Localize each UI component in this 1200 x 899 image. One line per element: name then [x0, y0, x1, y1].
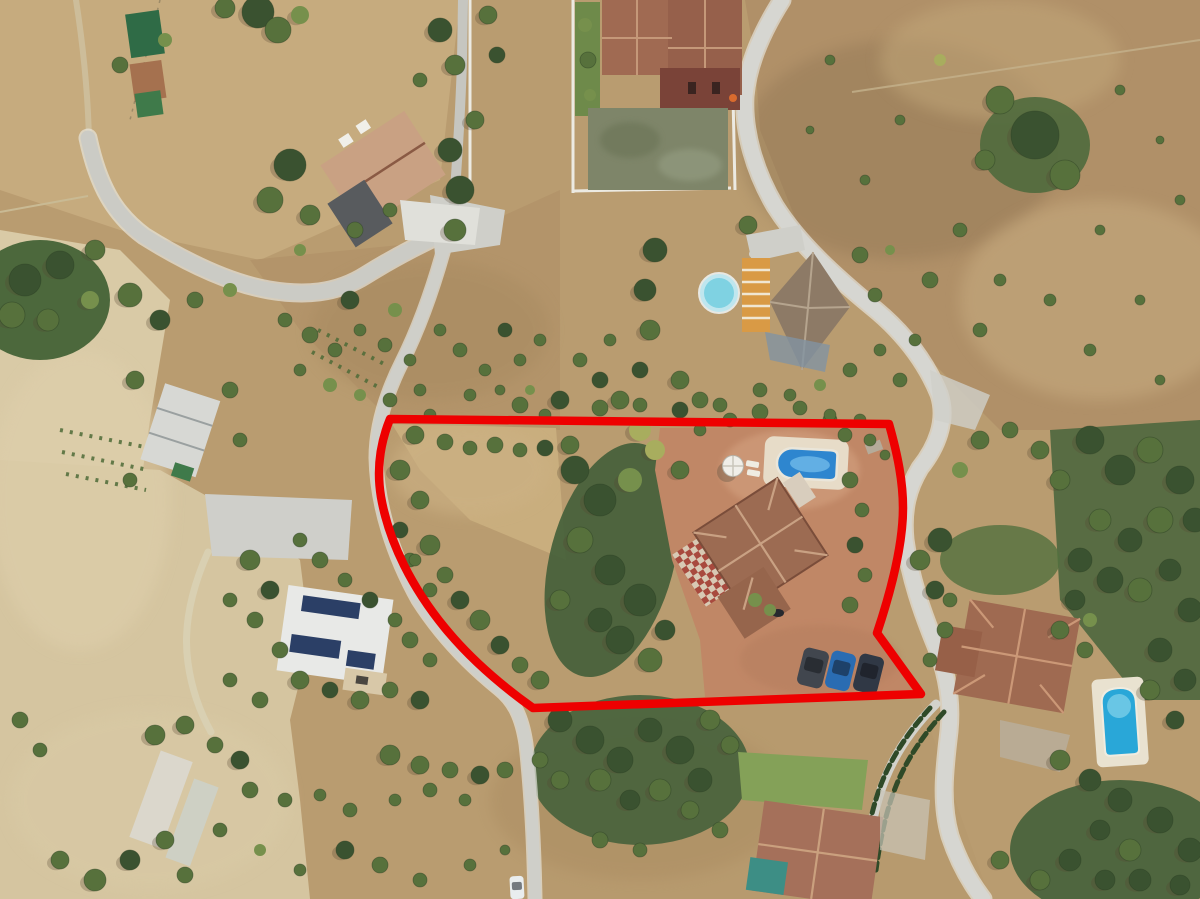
tree: [294, 864, 306, 876]
tree: [994, 274, 1006, 286]
tree: [721, 736, 739, 754]
tree: [463, 441, 477, 455]
tree: [380, 745, 400, 765]
tree: [910, 550, 930, 570]
tree: [428, 18, 452, 42]
tree: [512, 397, 528, 413]
tree: [343, 803, 357, 817]
tree: [274, 149, 306, 181]
garden-trees-southeast: [940, 525, 1060, 595]
tree: [1108, 788, 1132, 812]
tree: [952, 462, 968, 478]
tree: [1118, 528, 1142, 552]
tree: [512, 657, 528, 673]
tree: [672, 402, 688, 418]
tree: [272, 642, 288, 658]
tree: [423, 653, 437, 667]
tree: [748, 593, 762, 607]
tree: [254, 844, 266, 856]
tree: [855, 503, 869, 517]
tree: [584, 484, 616, 516]
tree: [1135, 295, 1145, 305]
tree: [223, 593, 237, 607]
tree: [291, 671, 309, 689]
tree: [550, 590, 570, 610]
tree: [388, 613, 402, 627]
tree: [252, 692, 268, 708]
tree: [1137, 437, 1163, 463]
tree: [150, 310, 170, 330]
tree: [383, 203, 397, 217]
tree: [561, 456, 589, 484]
tree: [1089, 509, 1111, 531]
tree: [633, 843, 647, 857]
tree: [934, 54, 946, 66]
villa-south-wall: [660, 68, 740, 110]
tree: [922, 272, 938, 288]
tree: [537, 440, 553, 456]
tree: [1148, 638, 1172, 662]
tree: [953, 223, 967, 237]
tree: [470, 610, 490, 630]
tree: [573, 353, 587, 367]
tree: [1031, 441, 1049, 459]
tree: [620, 790, 640, 810]
tree: [928, 528, 952, 552]
tree: [752, 404, 768, 420]
villa-window: [688, 82, 696, 94]
tree: [643, 238, 667, 262]
tree: [362, 592, 378, 608]
tree: [438, 138, 462, 162]
tree: [713, 398, 727, 412]
tree: [712, 822, 728, 838]
tree: [46, 251, 74, 279]
tree: [242, 782, 258, 798]
tree: [118, 283, 142, 307]
tree: [986, 86, 1014, 114]
tree: [638, 718, 662, 742]
tree: [1159, 559, 1181, 581]
tree: [561, 436, 579, 454]
tree: [389, 794, 401, 806]
tree: [618, 468, 642, 492]
tree: [607, 747, 633, 773]
aerial-photo-canvas: [0, 0, 1200, 899]
tree: [645, 440, 665, 460]
tree: [314, 789, 326, 801]
tree: [222, 382, 238, 398]
tree: [390, 460, 410, 480]
tree: [1002, 422, 1018, 438]
tree: [453, 343, 467, 357]
tree: [1129, 869, 1151, 891]
tree: [1076, 426, 1104, 454]
tree: [671, 461, 689, 479]
tree: [437, 434, 453, 450]
tree: [937, 622, 953, 638]
green-tarp: [134, 90, 163, 117]
tree: [885, 245, 895, 255]
tree: [588, 608, 612, 632]
tree: [868, 288, 882, 302]
tree: [328, 343, 342, 357]
tree: [247, 612, 263, 628]
tree: [351, 691, 369, 709]
tree: [372, 857, 388, 873]
tree: [825, 55, 835, 65]
tree: [764, 604, 776, 616]
tree: [406, 426, 424, 444]
tree: [231, 751, 249, 769]
tree: [1050, 750, 1070, 770]
tree: [655, 620, 675, 640]
tree: [551, 771, 569, 789]
tree: [312, 552, 328, 568]
tree: [814, 379, 826, 391]
tree: [514, 354, 526, 366]
tree: [880, 450, 890, 460]
tree: [84, 869, 106, 891]
tree: [842, 597, 858, 613]
tree: [187, 292, 203, 308]
tree: [446, 176, 474, 204]
tree: [909, 334, 921, 346]
tree: [753, 383, 767, 397]
tree: [215, 0, 235, 18]
tree: [943, 593, 957, 607]
tree: [592, 832, 608, 848]
tree: [411, 756, 429, 774]
tree: [126, 371, 144, 389]
tree: [513, 443, 527, 457]
tree: [261, 581, 279, 599]
tree: [1077, 642, 1093, 658]
tree: [595, 555, 625, 585]
tree: [784, 389, 796, 401]
tree: [112, 57, 128, 73]
tree: [858, 568, 872, 582]
tree: [383, 393, 397, 407]
tree: [843, 363, 857, 377]
tree: [1155, 375, 1165, 385]
tree: [382, 682, 398, 698]
tree: [1178, 598, 1200, 622]
tree: [120, 850, 140, 870]
tree: [123, 473, 137, 487]
tree: [265, 17, 291, 43]
tree: [33, 743, 47, 757]
tree: [1147, 807, 1173, 833]
tree: [466, 111, 484, 129]
teal-roof-annex: [746, 857, 788, 895]
tree: [1095, 870, 1115, 890]
tree: [1011, 111, 1059, 159]
tree: [991, 851, 1009, 869]
tree: [156, 831, 174, 849]
tree: [336, 841, 354, 859]
tree: [1083, 613, 1097, 627]
tree: [1095, 225, 1105, 235]
tree: [487, 437, 503, 453]
court-stain: [600, 122, 660, 158]
tree: [451, 591, 469, 609]
tree: [838, 428, 852, 442]
tree: [404, 354, 416, 366]
tree: [1090, 820, 1110, 840]
tree: [1156, 136, 1164, 144]
tree: [1059, 849, 1081, 871]
tree: [176, 716, 194, 734]
tree: [1079, 769, 1101, 791]
tree: [1178, 838, 1200, 862]
tree: [1050, 470, 1070, 490]
tree: [81, 291, 99, 309]
tree: [388, 303, 402, 317]
solar-house-window: [355, 675, 368, 685]
tree: [624, 584, 656, 616]
driveway-solar-house: [205, 494, 352, 560]
tree: [1166, 466, 1194, 494]
tree: [666, 736, 694, 764]
tree: [413, 73, 427, 87]
tree: [495, 385, 505, 395]
tree: [1170, 875, 1190, 895]
tree: [1068, 548, 1092, 572]
tree: [1097, 567, 1123, 593]
tree: [633, 398, 647, 412]
tree: [649, 779, 671, 801]
tree: [1115, 85, 1125, 95]
tree: [895, 115, 905, 125]
tree: [223, 673, 237, 687]
tree: [323, 378, 337, 392]
tree: [12, 712, 28, 728]
tree: [893, 373, 907, 387]
tree: [471, 766, 489, 784]
tree: [497, 762, 513, 778]
green-shed: [125, 10, 165, 58]
tree: [411, 491, 429, 509]
tree: [864, 434, 876, 446]
tree: [1105, 455, 1135, 485]
tree: [213, 823, 227, 837]
tree: [0, 302, 25, 328]
tree: [338, 573, 352, 587]
tree: [1050, 160, 1080, 190]
tree: [692, 392, 708, 408]
tree: [1166, 711, 1184, 729]
tree: [300, 205, 320, 225]
tree: [257, 187, 283, 213]
tree: [278, 313, 292, 327]
tree: [806, 126, 814, 134]
tree: [532, 752, 548, 768]
tree: [444, 219, 466, 241]
tree: [926, 581, 944, 599]
tree: [584, 89, 596, 101]
tree: [973, 323, 987, 337]
tree: [793, 401, 807, 415]
tree: [681, 801, 699, 819]
tree: [294, 364, 306, 376]
tree: [442, 762, 458, 778]
tree: [531, 671, 549, 689]
tree: [638, 648, 662, 672]
tree: [158, 33, 172, 47]
tree: [640, 320, 660, 340]
tree: [975, 150, 995, 170]
tree: [842, 472, 858, 488]
tree: [592, 372, 608, 388]
villa-window: [712, 82, 720, 94]
tree: [347, 222, 363, 238]
tree: [634, 279, 656, 301]
tree: [240, 550, 260, 570]
tree: [414, 384, 426, 396]
tree: [464, 389, 476, 401]
tree: [1084, 344, 1096, 356]
tree: [606, 626, 634, 654]
tree: [51, 851, 69, 869]
tree: [1119, 839, 1141, 861]
tree: [1044, 294, 1056, 306]
aerial-photo: [0, 0, 1200, 899]
round-pool: [704, 278, 734, 308]
car-white: [509, 876, 524, 899]
tree: [604, 334, 616, 346]
tree: [1030, 870, 1050, 890]
tree: [567, 527, 593, 553]
tree: [413, 873, 427, 887]
tree: [551, 391, 569, 409]
tree: [1147, 507, 1173, 533]
tree: [611, 391, 629, 409]
tree: [464, 859, 476, 871]
tree: [294, 244, 306, 256]
tree: [491, 636, 509, 654]
tree: [145, 725, 165, 745]
court-stain: [658, 149, 722, 181]
tree: [498, 323, 512, 337]
tree: [852, 247, 868, 263]
tree: [1175, 195, 1185, 205]
tree: [402, 632, 418, 648]
tree: [459, 794, 471, 806]
tree: [971, 431, 989, 449]
tree: [1140, 680, 1160, 700]
tree: [223, 283, 237, 297]
tree: [578, 18, 592, 32]
tree: [409, 554, 421, 566]
tree: [445, 55, 465, 75]
tree: [479, 364, 491, 376]
tree: [874, 344, 886, 356]
tree: [341, 291, 359, 309]
tree: [354, 389, 366, 401]
tree: [207, 737, 223, 753]
tree: [700, 710, 720, 730]
tree: [589, 769, 611, 791]
tree: [923, 653, 937, 667]
pergola: [742, 258, 770, 332]
tree: [688, 768, 712, 792]
tree: [437, 567, 453, 583]
tree: [860, 175, 870, 185]
traffic-cone: [729, 94, 737, 102]
tree: [500, 845, 510, 855]
tree: [592, 400, 608, 416]
tree: [85, 240, 105, 260]
tree: [580, 52, 596, 68]
tree: [411, 691, 429, 709]
tree: [1065, 590, 1085, 610]
tree: [479, 6, 497, 24]
tree: [489, 47, 505, 63]
tree: [671, 371, 689, 389]
tree: [525, 385, 535, 395]
tree: [177, 867, 193, 883]
tree: [1051, 621, 1069, 639]
tree: [847, 537, 863, 553]
tree: [9, 264, 41, 296]
tree: [423, 783, 437, 797]
tree: [1128, 578, 1152, 602]
gravel-patio-south: [880, 790, 930, 860]
tree: [378, 338, 392, 352]
tree: [632, 362, 648, 378]
tree: [291, 6, 309, 24]
tree: [302, 327, 318, 343]
tree: [434, 324, 446, 336]
tree: [534, 334, 546, 346]
tree: [420, 535, 440, 555]
tree: [739, 216, 757, 234]
tree: [1174, 669, 1196, 691]
tree: [322, 682, 338, 698]
tree: [293, 533, 307, 547]
tree: [233, 433, 247, 447]
tree: [354, 324, 366, 336]
tree: [278, 793, 292, 807]
tree: [37, 309, 59, 331]
tree: [548, 708, 572, 732]
tree: [576, 726, 604, 754]
